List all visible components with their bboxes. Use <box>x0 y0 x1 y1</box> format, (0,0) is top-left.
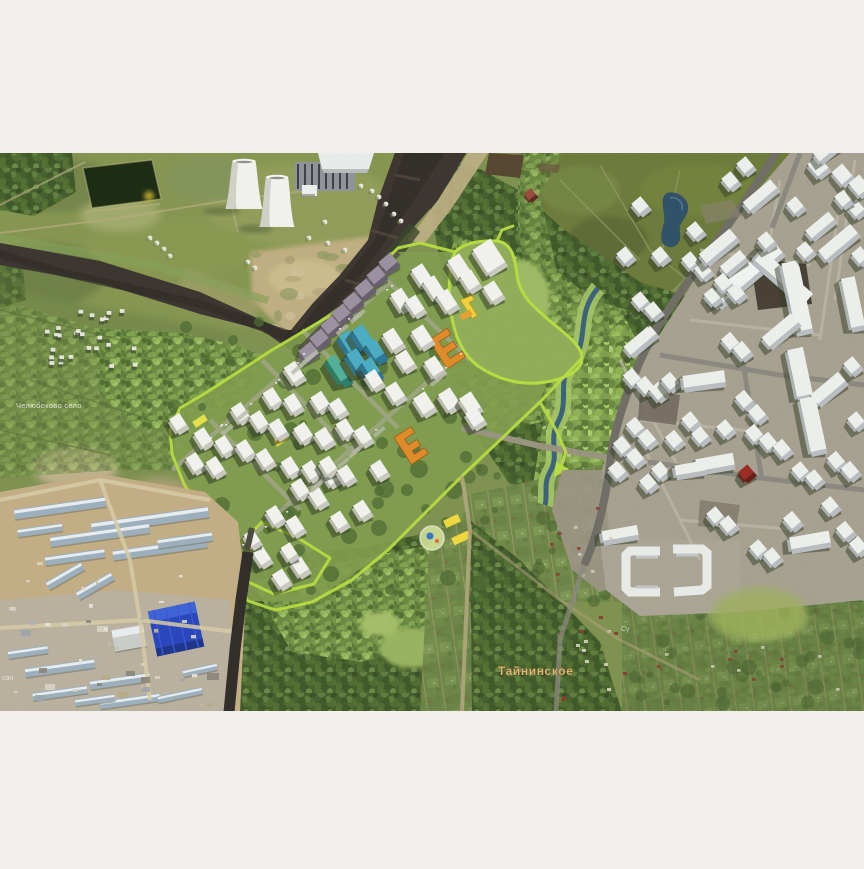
svg-text:Тайнинское: Тайнинское <box>498 664 573 678</box>
svg-text:сан: сан <box>2 675 13 682</box>
svg-text:Челюбоково село: Челюбоково село <box>16 401 82 410</box>
svg-text:Су: Су <box>621 626 630 633</box>
